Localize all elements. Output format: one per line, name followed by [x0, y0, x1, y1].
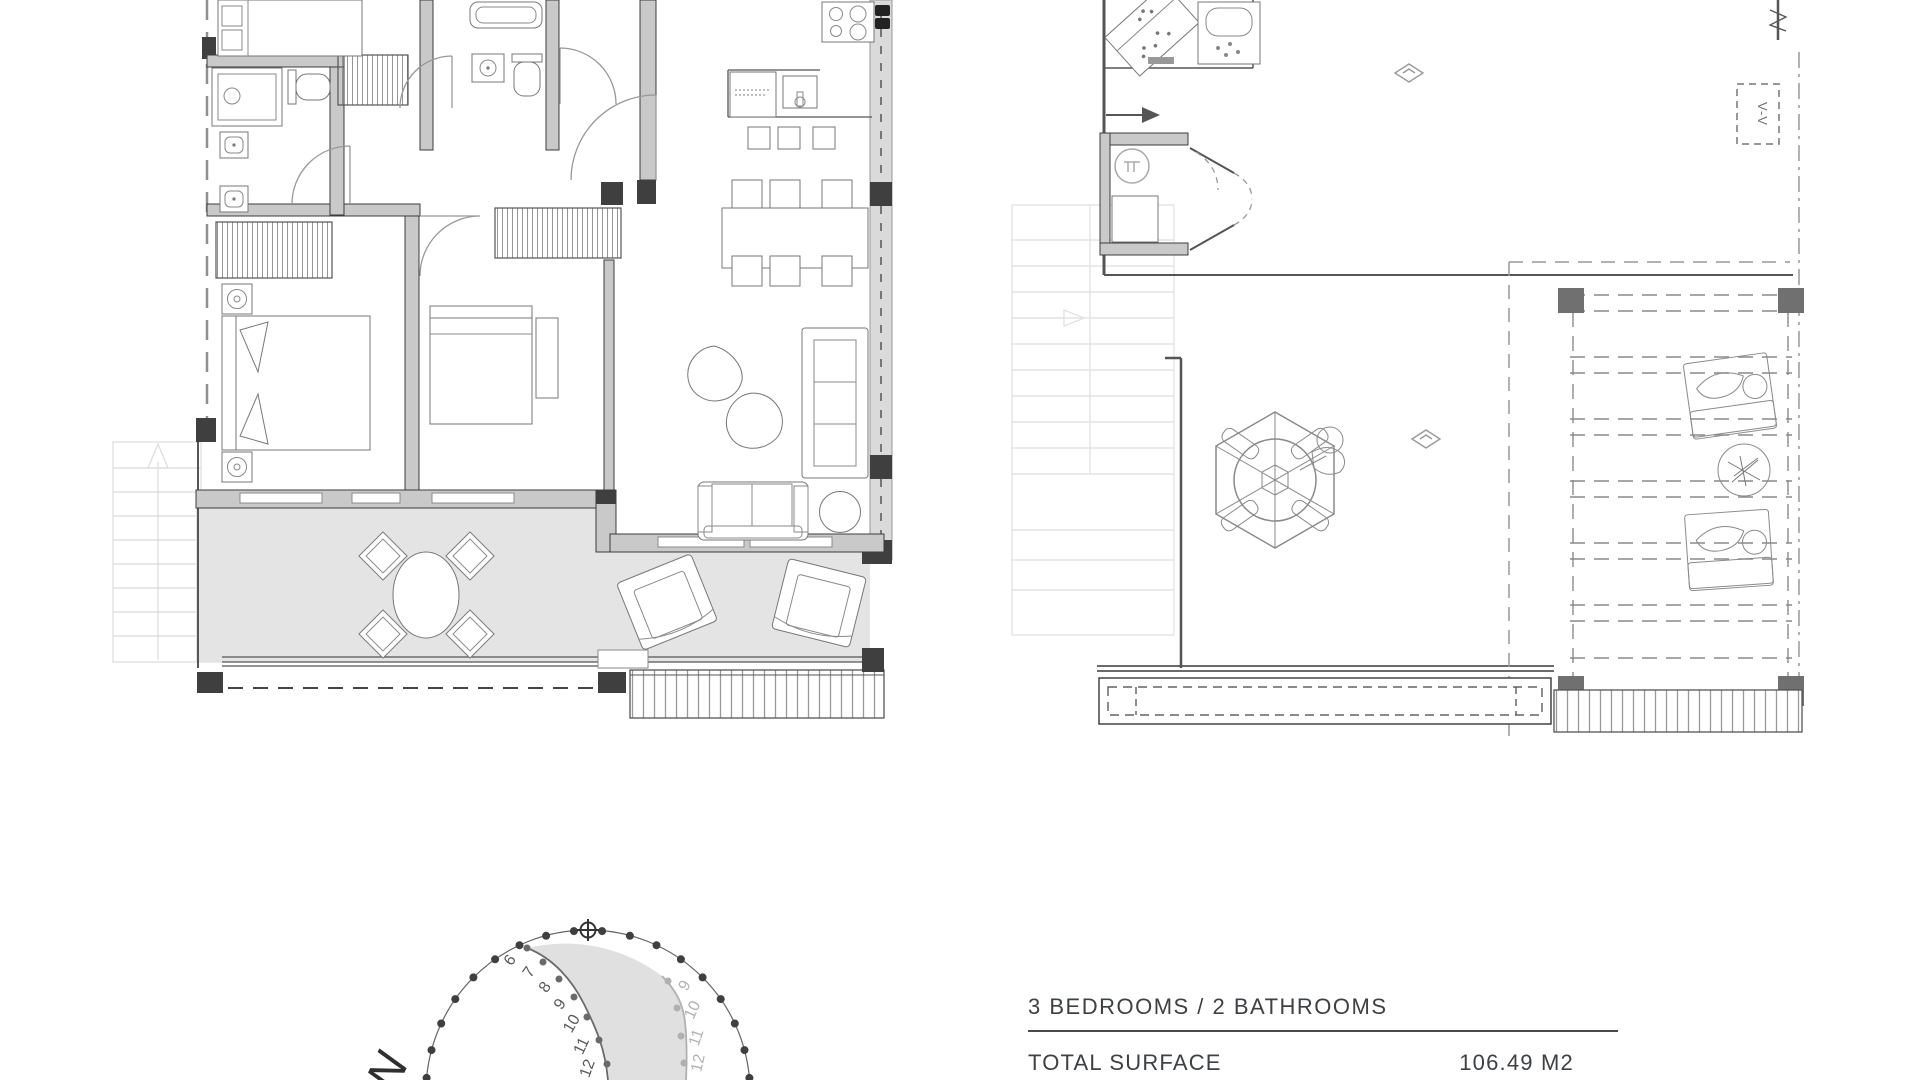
hour-label: 9: [551, 996, 570, 1013]
right-floor-plan: V-V: [1012, 0, 1804, 742]
shower-icon: [470, 2, 542, 28]
shower-head-icon: [1115, 149, 1149, 183]
section-marker: V-V: [1737, 84, 1779, 144]
bed-icon: [218, 0, 362, 56]
shower-icon: [212, 68, 282, 126]
pergola-post: [1558, 288, 1584, 313]
bather-figure-icon: [1300, 427, 1345, 474]
bar-stool-icon: [778, 127, 800, 149]
hob-icon: [822, 2, 874, 42]
sun-lounger-icon: [1684, 509, 1773, 591]
sunlight-shaded-band: [527, 944, 687, 1080]
nightstand-icon: [222, 452, 252, 482]
switch-panel-icon: [875, 18, 890, 29]
entry-arrow-icon: [1106, 107, 1160, 123]
jacuzzi-icon: [1216, 412, 1345, 548]
bathroom-1: [212, 68, 330, 212]
hour-label: 9: [676, 978, 695, 994]
roof-overhang-dashed: [1509, 262, 1790, 742]
north-label: N: [357, 1044, 420, 1080]
hour-label: 12: [577, 1057, 599, 1080]
dining-area: [722, 180, 868, 286]
bedroom-1: [222, 284, 370, 482]
outdoor-kitchen: [1105, 0, 1260, 76]
hour-label: 10: [560, 1012, 584, 1036]
living-area: [688, 328, 868, 540]
section-marker-label: V-V: [1755, 102, 1770, 126]
walls: [1097, 0, 1799, 742]
planter: [1099, 678, 1551, 724]
bathroom-2: [470, 2, 542, 96]
bed-icon: [430, 306, 532, 424]
hour-label: 11: [571, 1035, 593, 1057]
bedroom-top: [218, 0, 362, 56]
toilet-icon: [512, 54, 542, 96]
summary-block: 3 BEDROOMS / 2 BATHROOMS TOTAL SURFACE 1…: [1028, 994, 1618, 1076]
divider: [1028, 1030, 1618, 1032]
side-table-icon: [820, 492, 861, 533]
kitchen: [728, 2, 890, 149]
shower-room: [1100, 133, 1252, 255]
bar-stool-icon: [748, 127, 770, 149]
bar-stool-icon: [813, 127, 835, 149]
hour-label: 12: [688, 1052, 708, 1073]
total-surface-value: 106.49 M2: [1459, 1050, 1618, 1076]
deck-strip: [630, 670, 884, 718]
toilet-icon: [288, 70, 330, 104]
hour-label: 7: [520, 964, 539, 981]
sofa-icon: [802, 328, 868, 478]
vent-diamond-icon: [1395, 64, 1423, 82]
door-leaf: [1190, 148, 1234, 250]
wardrobe-icon: [495, 208, 621, 258]
nightstand-icon: [222, 284, 252, 314]
sun-marker-icon: [577, 919, 599, 941]
grill-vent-icon: [1148, 57, 1174, 64]
wardrobe-icon: [216, 222, 332, 278]
vent-diamond-icon: [1412, 430, 1440, 448]
terrace-gate: [598, 650, 648, 668]
hour-label: 8: [536, 979, 555, 996]
sink-icon: [220, 132, 248, 158]
hour-label: 6: [501, 952, 520, 969]
total-surface-label: TOTAL SURFACE: [1028, 1050, 1222, 1076]
bench-icon: [536, 318, 558, 398]
switch-panel-icon: [875, 5, 890, 16]
kitchen-sink-icon: [783, 76, 817, 108]
sink-icon: [220, 186, 248, 212]
bbq-grill-icon: [1105, 0, 1199, 76]
deck-strip: [1554, 690, 1802, 732]
armchair-icon: [726, 393, 782, 448]
pergola-post: [1778, 288, 1804, 313]
loveseat-icon: [698, 482, 808, 540]
wardrobe-icon: [338, 55, 408, 105]
dishwasher-icon: [730, 72, 776, 117]
rooms-summary: 3 BEDROOMS / 2 BATHROOMS: [1028, 994, 1618, 1020]
shower-tray-icon: [1112, 196, 1158, 242]
left-floor-plan: [113, 0, 892, 718]
bed-icon: [222, 316, 370, 450]
outdoor-sink-icon: [1198, 2, 1260, 64]
armchair-icon: [688, 346, 742, 401]
plant-icon: [1718, 444, 1770, 496]
floor-plan-sheet: V-V: [0, 0, 1920, 1080]
wall-break-symbol: [1770, 10, 1786, 31]
external-staircase-icon: [1012, 205, 1174, 635]
pergola: [1558, 288, 1804, 706]
pergola-beams: [1570, 295, 1792, 658]
bedroom-2: [430, 306, 558, 424]
sun-path-diagram: 6 7 8 9 10 11 12 9 10 11 12 N: [357, 919, 754, 1080]
sun-lounger-icon: [1683, 353, 1777, 440]
hour-label: 11: [686, 1027, 707, 1048]
sink-icon: [472, 54, 504, 82]
